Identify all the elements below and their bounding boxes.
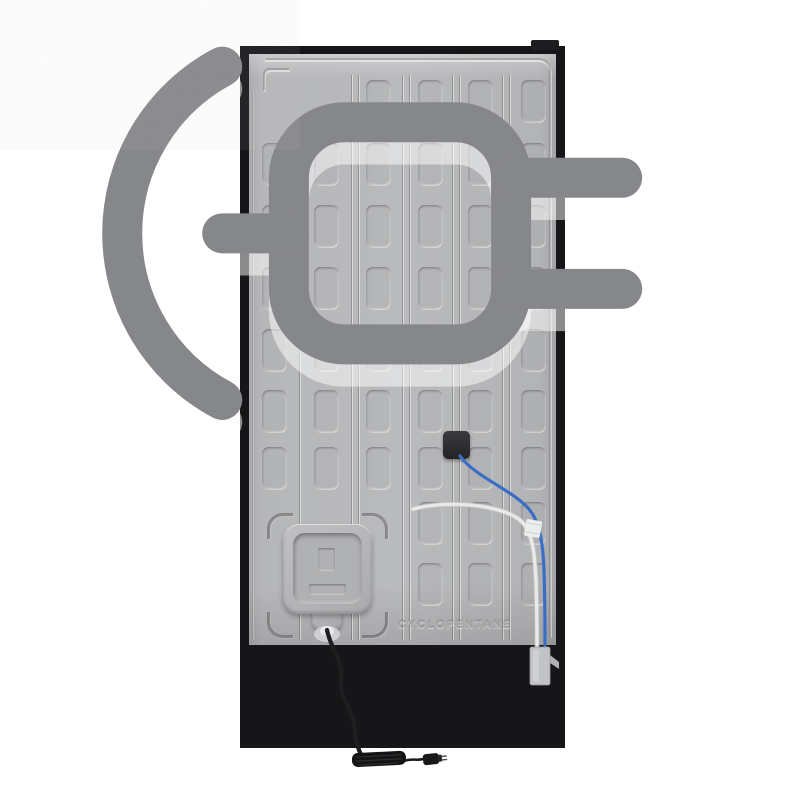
metal-grain-texture bbox=[0, 0, 300, 150]
drain-tube-shadow bbox=[413, 504, 537, 676]
cord-to-plug bbox=[404, 759, 423, 761]
tube-cover bbox=[530, 647, 559, 685]
cord-bundle bbox=[352, 751, 407, 768]
drain-tube bbox=[413, 504, 537, 676]
tape-sleeve bbox=[524, 519, 543, 539]
blue-wire bbox=[460, 456, 545, 678]
power-cord bbox=[327, 630, 362, 756]
refrigerator-back-photo: CYCLOPENTANE bbox=[0, 0, 800, 800]
power-plug bbox=[422, 752, 447, 765]
